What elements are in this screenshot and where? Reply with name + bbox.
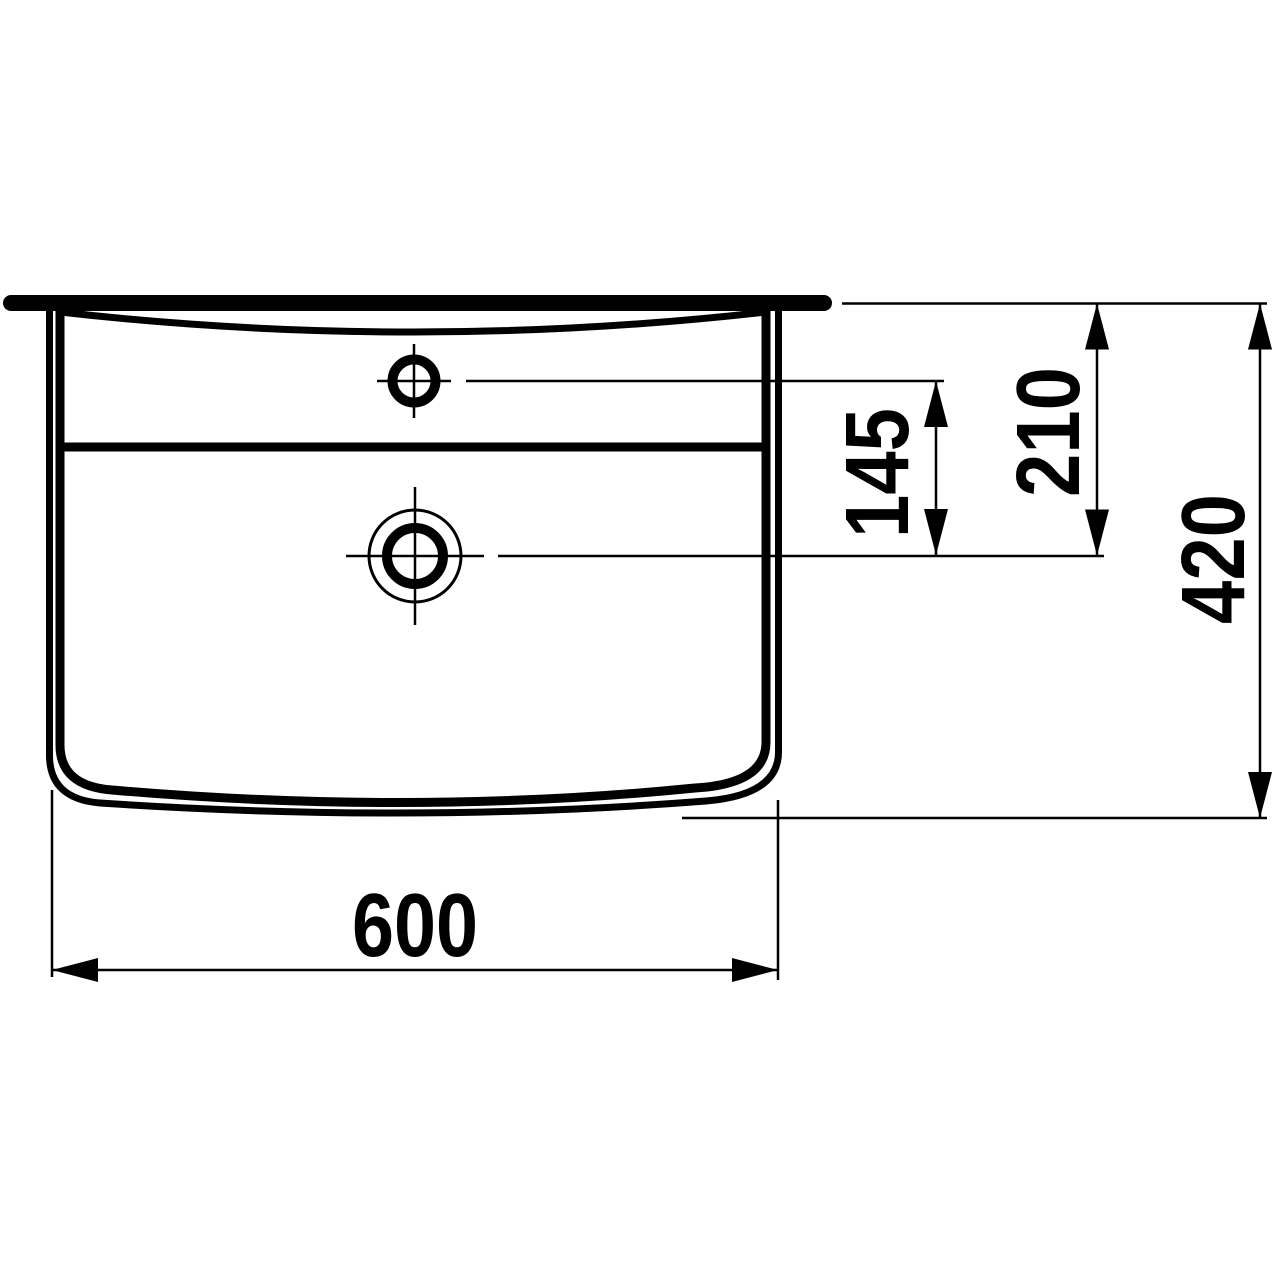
dim-label-210: 210 [999, 367, 1099, 497]
drain [346, 487, 484, 625]
tap-hole-crosshair [377, 344, 451, 418]
rim-inner-curve [60, 312, 766, 332]
arrow-down-420 [1248, 772, 1272, 818]
arrow-down-210 [1085, 510, 1109, 556]
dimension-overall-width: 600 [52, 876, 778, 982]
tap-hole [377, 344, 451, 418]
drain-crosshair [346, 487, 484, 625]
arrow-up-210 [1085, 304, 1109, 350]
washbasin-dimension-drawing: 145 210 420 600 [0, 0, 1280, 1280]
arrow-left-600 [52, 958, 98, 982]
drawing-canvas: 145 210 420 600 [0, 0, 1280, 1280]
dim-label-420: 420 [1164, 494, 1264, 624]
arrow-right-600 [732, 958, 778, 982]
arrow-up-420 [1248, 304, 1272, 350]
dimension-tap-to-drain: 145 [828, 381, 948, 555]
basin-outline [11, 303, 824, 813]
dimension-overall-height: 420 [1164, 304, 1272, 819]
dimension-rim-to-drain: 210 [999, 304, 1109, 556]
dim-label-145: 145 [828, 408, 928, 538]
dim-label-600: 600 [352, 876, 478, 976]
